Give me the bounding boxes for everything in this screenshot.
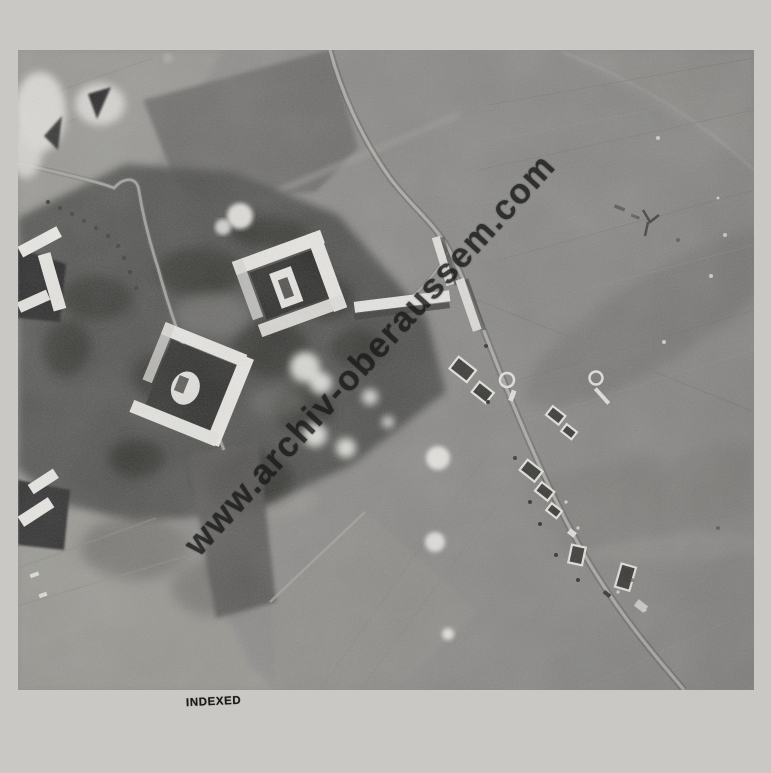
scan-page: www.archiv-oberaussem.com INDEXED: [0, 0, 771, 773]
indexed-stamp: INDEXED: [186, 695, 242, 709]
film-grain: [18, 50, 754, 690]
aerial-photo-art: [18, 50, 754, 690]
aerial-photograph: www.archiv-oberaussem.com: [18, 50, 754, 690]
